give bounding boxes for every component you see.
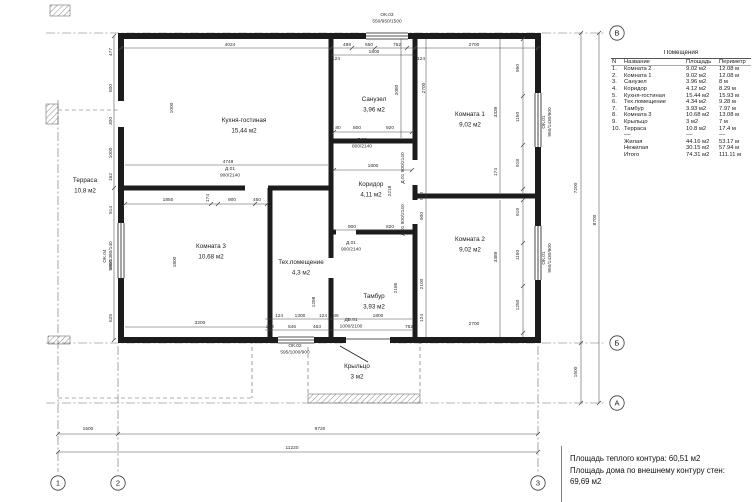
axis-label: 3 (536, 479, 540, 488)
dimension-label: 800 (353, 125, 361, 131)
opening-mark: Д.01 900/2140 (400, 152, 406, 184)
dimension-label: 900 (228, 197, 236, 203)
dimension-label: 2700 (421, 82, 427, 93)
dimension-label: 900 (348, 224, 356, 230)
dimension-label: 1150 (515, 112, 521, 123)
axis-label: Б (615, 339, 620, 348)
note-outer-value: 69,69 м2 (570, 476, 753, 488)
dimension-label: 2100 (419, 278, 425, 289)
dimension-label: 2700 (469, 321, 480, 327)
dimension-label: 3389 (493, 251, 499, 262)
table-row: 9.Крыльцо3 м27 м (611, 119, 751, 126)
dimension-label: 625 (108, 314, 114, 322)
dimension-label: 546 (288, 324, 296, 330)
dimension-label: 2218 (387, 185, 393, 196)
room-name: Терраса (73, 177, 98, 184)
dimension-label: 450 (253, 197, 261, 203)
opening-mark: 595/1000/900 (280, 349, 310, 355)
dimension-label: 498 (343, 42, 351, 48)
rooms-table: Помещения N Название Площадь Периметр 1.… (611, 50, 751, 159)
opening-mark: 800/2140 (352, 143, 372, 149)
dimension-label: 820 (386, 224, 394, 230)
opening-mark: Д.01 900/2140 (400, 204, 406, 236)
dimension-label: 1800 (172, 256, 178, 267)
dimension-label: 918 (515, 159, 521, 167)
table-row: 6.Тех.помещение4.34 м29.28 м (611, 99, 751, 106)
room-name: Кухня-гостиная (222, 117, 267, 124)
dimension-label: 124 (319, 313, 327, 319)
dimension-label: 124 (419, 314, 425, 322)
area-notes: Площадь теплого контура: 60,51 м2 Площад… (561, 446, 753, 502)
legend-header-perimeter: Периметр (718, 58, 751, 66)
dimension-label: 2185 (393, 282, 399, 293)
dimension-label: 174 (493, 168, 499, 176)
room-name: Коридор (359, 181, 384, 188)
legend-header-area: Площадь (685, 58, 718, 66)
dimension-label: 124 (275, 313, 283, 319)
room-area: 4,3 м2 (292, 270, 311, 277)
axis-lines (46, 33, 606, 472)
table-separator-row: –––––– (611, 132, 751, 139)
table-row: 4.Коридор4.12 м28.29 м (611, 86, 751, 93)
dimension-label: 262 (266, 324, 274, 330)
room-area: 4,11 м2 (360, 192, 382, 199)
dimension-label: 1850 (163, 197, 174, 203)
room-name: Тамбур (363, 292, 385, 300)
opening-mark: Д.01 (225, 166, 235, 172)
legend-header-num: N (611, 58, 623, 66)
dimension-label: 1250 (515, 299, 521, 310)
dimension-label: 920 (386, 125, 394, 131)
opening-mark: ОК.01 (541, 251, 547, 265)
dimension-label: 2700 (469, 42, 480, 48)
dimension-label: 3200 (195, 320, 206, 326)
note-outer-contour: Площадь дома по внешнему контуру стен: (570, 465, 753, 477)
table-summary-row: Нежилая30.15 м257.94 м (611, 145, 751, 152)
dimension-label: 80 (335, 125, 341, 131)
room-area: 9,02 м2 (459, 247, 481, 254)
porch-leader-line (340, 346, 368, 362)
room-name: Крыльцо (344, 363, 370, 370)
opening-mark: 950/1430/900 (547, 243, 553, 273)
dimension-label: 7200 (573, 182, 579, 193)
room-area: 3,93 м2 (363, 304, 385, 311)
dimension-label: 1000 (169, 102, 175, 113)
dimension-label: 1800 (368, 163, 379, 169)
dimension-label: 900 (419, 212, 425, 220)
room-name: Комната 3 (196, 243, 226, 250)
dimension-label: 762 (405, 324, 413, 330)
legend-title: Помещения (611, 50, 751, 58)
dimension-label: 174 (205, 194, 211, 202)
floor-plan-sheet: 4024498550752180012412427004776003001000… (0, 0, 753, 502)
dimension-label: 1150 (515, 250, 521, 261)
opening-mark: ОК.04 (102, 249, 108, 263)
table-row: 2.Комната 19.02 м212.08 м (611, 73, 751, 80)
dimension-label: 914 (108, 206, 114, 214)
walls (121, 36, 538, 340)
table-row: 10.Терраса10.8 м217.4 м (611, 126, 751, 133)
dimension-label: 752 (393, 42, 401, 48)
legend-header-row: N Название Площадь Периметр (611, 58, 751, 66)
dimension-label: 9720 (315, 426, 326, 432)
room-name: Комната 2 (455, 236, 485, 243)
dimension-label: 1000 (108, 147, 114, 158)
opening-mark: ОК.01 (541, 115, 547, 129)
room-name: Комната 1 (455, 111, 485, 118)
dimension-label: 46 (333, 313, 339, 319)
dimension-label: 1300 (295, 313, 306, 319)
dimension-label: 3339 (493, 106, 499, 117)
dimension-label: 11220 (286, 445, 299, 451)
dimension-label: 500 (419, 192, 425, 200)
dimension-label: 4024 (225, 42, 236, 48)
dimension-label: 1500 (83, 426, 94, 432)
dimension-label: 1800 (369, 49, 380, 55)
table-row: 8.Комната 310.68 м213.08 м (611, 112, 751, 119)
opening-mark: ОК.03 (380, 12, 394, 18)
axis-label: 2 (116, 479, 120, 488)
room-area: 15,44 м2 (231, 128, 257, 135)
dimension-label: 4748 (223, 159, 234, 165)
table-summary-row: Жилая44.16 м253.17 м (611, 139, 751, 146)
legend-header-name: Название (623, 58, 685, 66)
table-row: 1.Комната 29.02 м212.08 м (611, 66, 751, 73)
dimension-label: 477 (108, 48, 114, 56)
axis-label: 1 (56, 479, 60, 488)
dimension-label: 2080 (394, 84, 400, 95)
room-name: Санузел (362, 96, 387, 103)
opening-mark: ДВ.01 (344, 317, 357, 323)
dimension-label: 1500 (573, 366, 579, 377)
table-row: 3.Санузел3.96 м28 м (611, 79, 751, 86)
room-area: 3 м2 (350, 374, 364, 381)
rooms-legend: Помещения N Название Площадь Периметр 1.… (611, 50, 751, 159)
dimension-label: 8700 (592, 214, 598, 225)
room-area: 10,8 м2 (74, 188, 96, 195)
dimension-label: 124 (417, 56, 425, 62)
opening-mark: 550/950/1500 (372, 18, 402, 24)
opening-mark: 1000/2100 (340, 323, 363, 329)
room-area: 9,02 м2 (459, 122, 481, 129)
dimension-label: 1298 (311, 296, 317, 307)
table-row: 5.Кухня-гостиная15.44 м215.93 м (611, 93, 751, 100)
dimension-label: 300 (108, 117, 114, 125)
opening-mark: 900/1380/140 (108, 241, 114, 271)
dimension-label: 600 (108, 84, 114, 92)
note-warm-contour: Площадь теплого контура: 60,51 м2 (570, 453, 753, 465)
table-row: 7.Тамбур3.93 м27.97 м (611, 106, 751, 113)
dimension-label: 950 (515, 64, 521, 72)
room-area: 10,68 м2 (198, 254, 224, 261)
dimension-label: 463 (313, 324, 321, 330)
axis-label: В (614, 29, 619, 38)
opening-mark: Д.02 (357, 137, 367, 143)
dimension-label: 550 (365, 42, 373, 48)
dimension-label: 162 (108, 173, 114, 181)
room-name: Тех.помещение (278, 259, 324, 266)
dimension-label: 919 (515, 208, 521, 216)
dimension-label: 124 (332, 56, 340, 62)
table-summary-row: Итого74.31 м2111.11 м (611, 152, 751, 159)
opening-mark: ОК.02 (288, 343, 302, 349)
dimension-label: 1800 (373, 313, 384, 319)
opening-mark: 950/1430/900 (547, 107, 553, 137)
opening-mark: Д.01 (346, 240, 356, 246)
opening-mark: 900/2140 (341, 246, 361, 252)
axis-label: А (614, 399, 619, 408)
room-area: 3,96 м2 (363, 107, 385, 114)
opening-mark: 900/2140 (220, 172, 240, 178)
